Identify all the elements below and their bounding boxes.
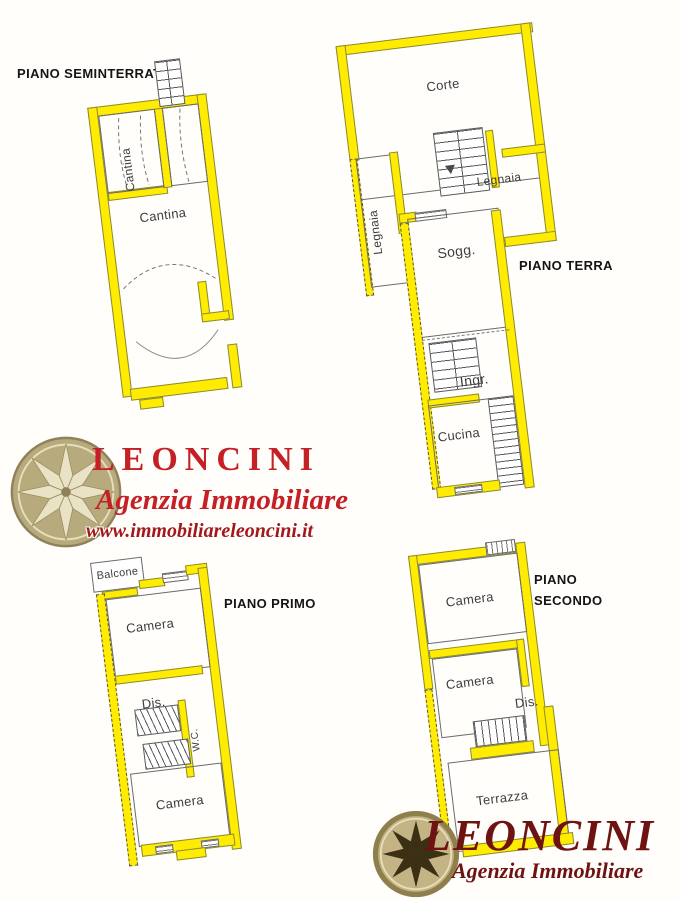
stairs — [142, 738, 191, 769]
agency-website: www.immobiliareleoncini.it — [86, 520, 313, 543]
plan-terra: Corte Legnaia Legnaia Sogg. Ingr. Cucina — [338, 26, 594, 517]
stairs — [154, 58, 185, 107]
plan-seminterrato: Cantina Cantina — [86, 83, 250, 426]
floor-title-seminterrato: PIANO SEMINTERRATO — [17, 66, 172, 81]
agency-tagline: Agenzia Immobiliare — [96, 484, 348, 517]
agency-tagline-footer: Agenzia Immobiliare — [452, 858, 643, 884]
window — [162, 570, 189, 583]
stairs-direction-arrow — [445, 165, 456, 175]
agency-name: LEONCINI — [92, 441, 320, 479]
wall — [504, 231, 557, 247]
floor-title-primo: PIANO PRIMO — [224, 596, 316, 611]
wall — [176, 847, 207, 861]
wall — [138, 577, 165, 589]
agency-name-footer: LEONCINI — [424, 810, 655, 861]
floorplan-sheet: PIANO SEMINTERRATO PIANO TERRA PIANO PRI… — [0, 0, 682, 900]
agency-logo-footer: LEONCINI Agenzia Immobiliare — [366, 804, 676, 900]
agency-logo-main: LEONCINI Agenzia Immobiliare www.immobil… — [8, 432, 368, 552]
plan-primo: Balcone Camera Dis. W.C. Camera — [90, 546, 267, 871]
